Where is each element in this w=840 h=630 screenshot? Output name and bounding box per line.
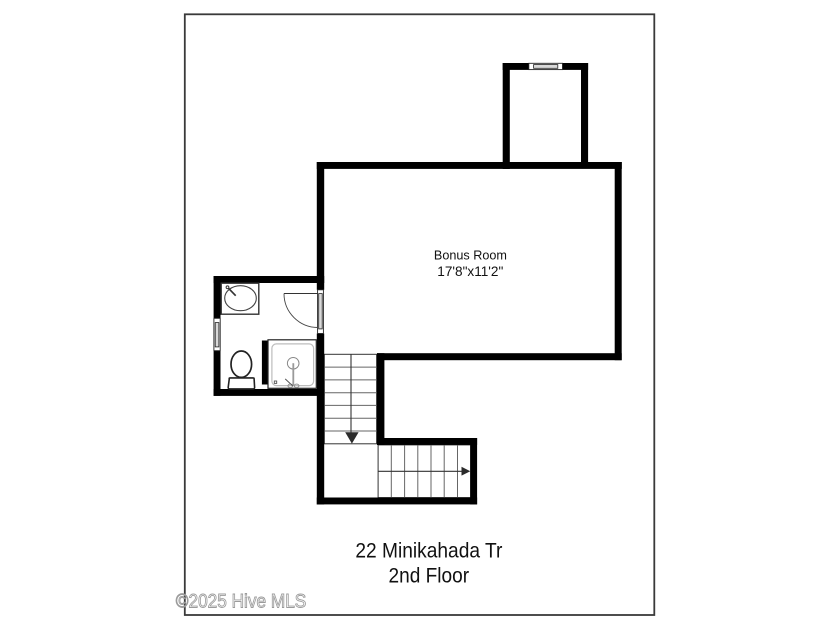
svg-text:17'8"x11'2": 17'8"x11'2"	[437, 263, 503, 279]
svg-text:22 Minikahada Tr: 22 Minikahada Tr	[355, 537, 502, 562]
svg-text:©2025 Hive MLS: ©2025 Hive MLS	[176, 591, 306, 612]
svg-text:Bonus Room: Bonus Room	[434, 248, 507, 263]
svg-text:2nd Floor: 2nd Floor	[389, 562, 470, 587]
